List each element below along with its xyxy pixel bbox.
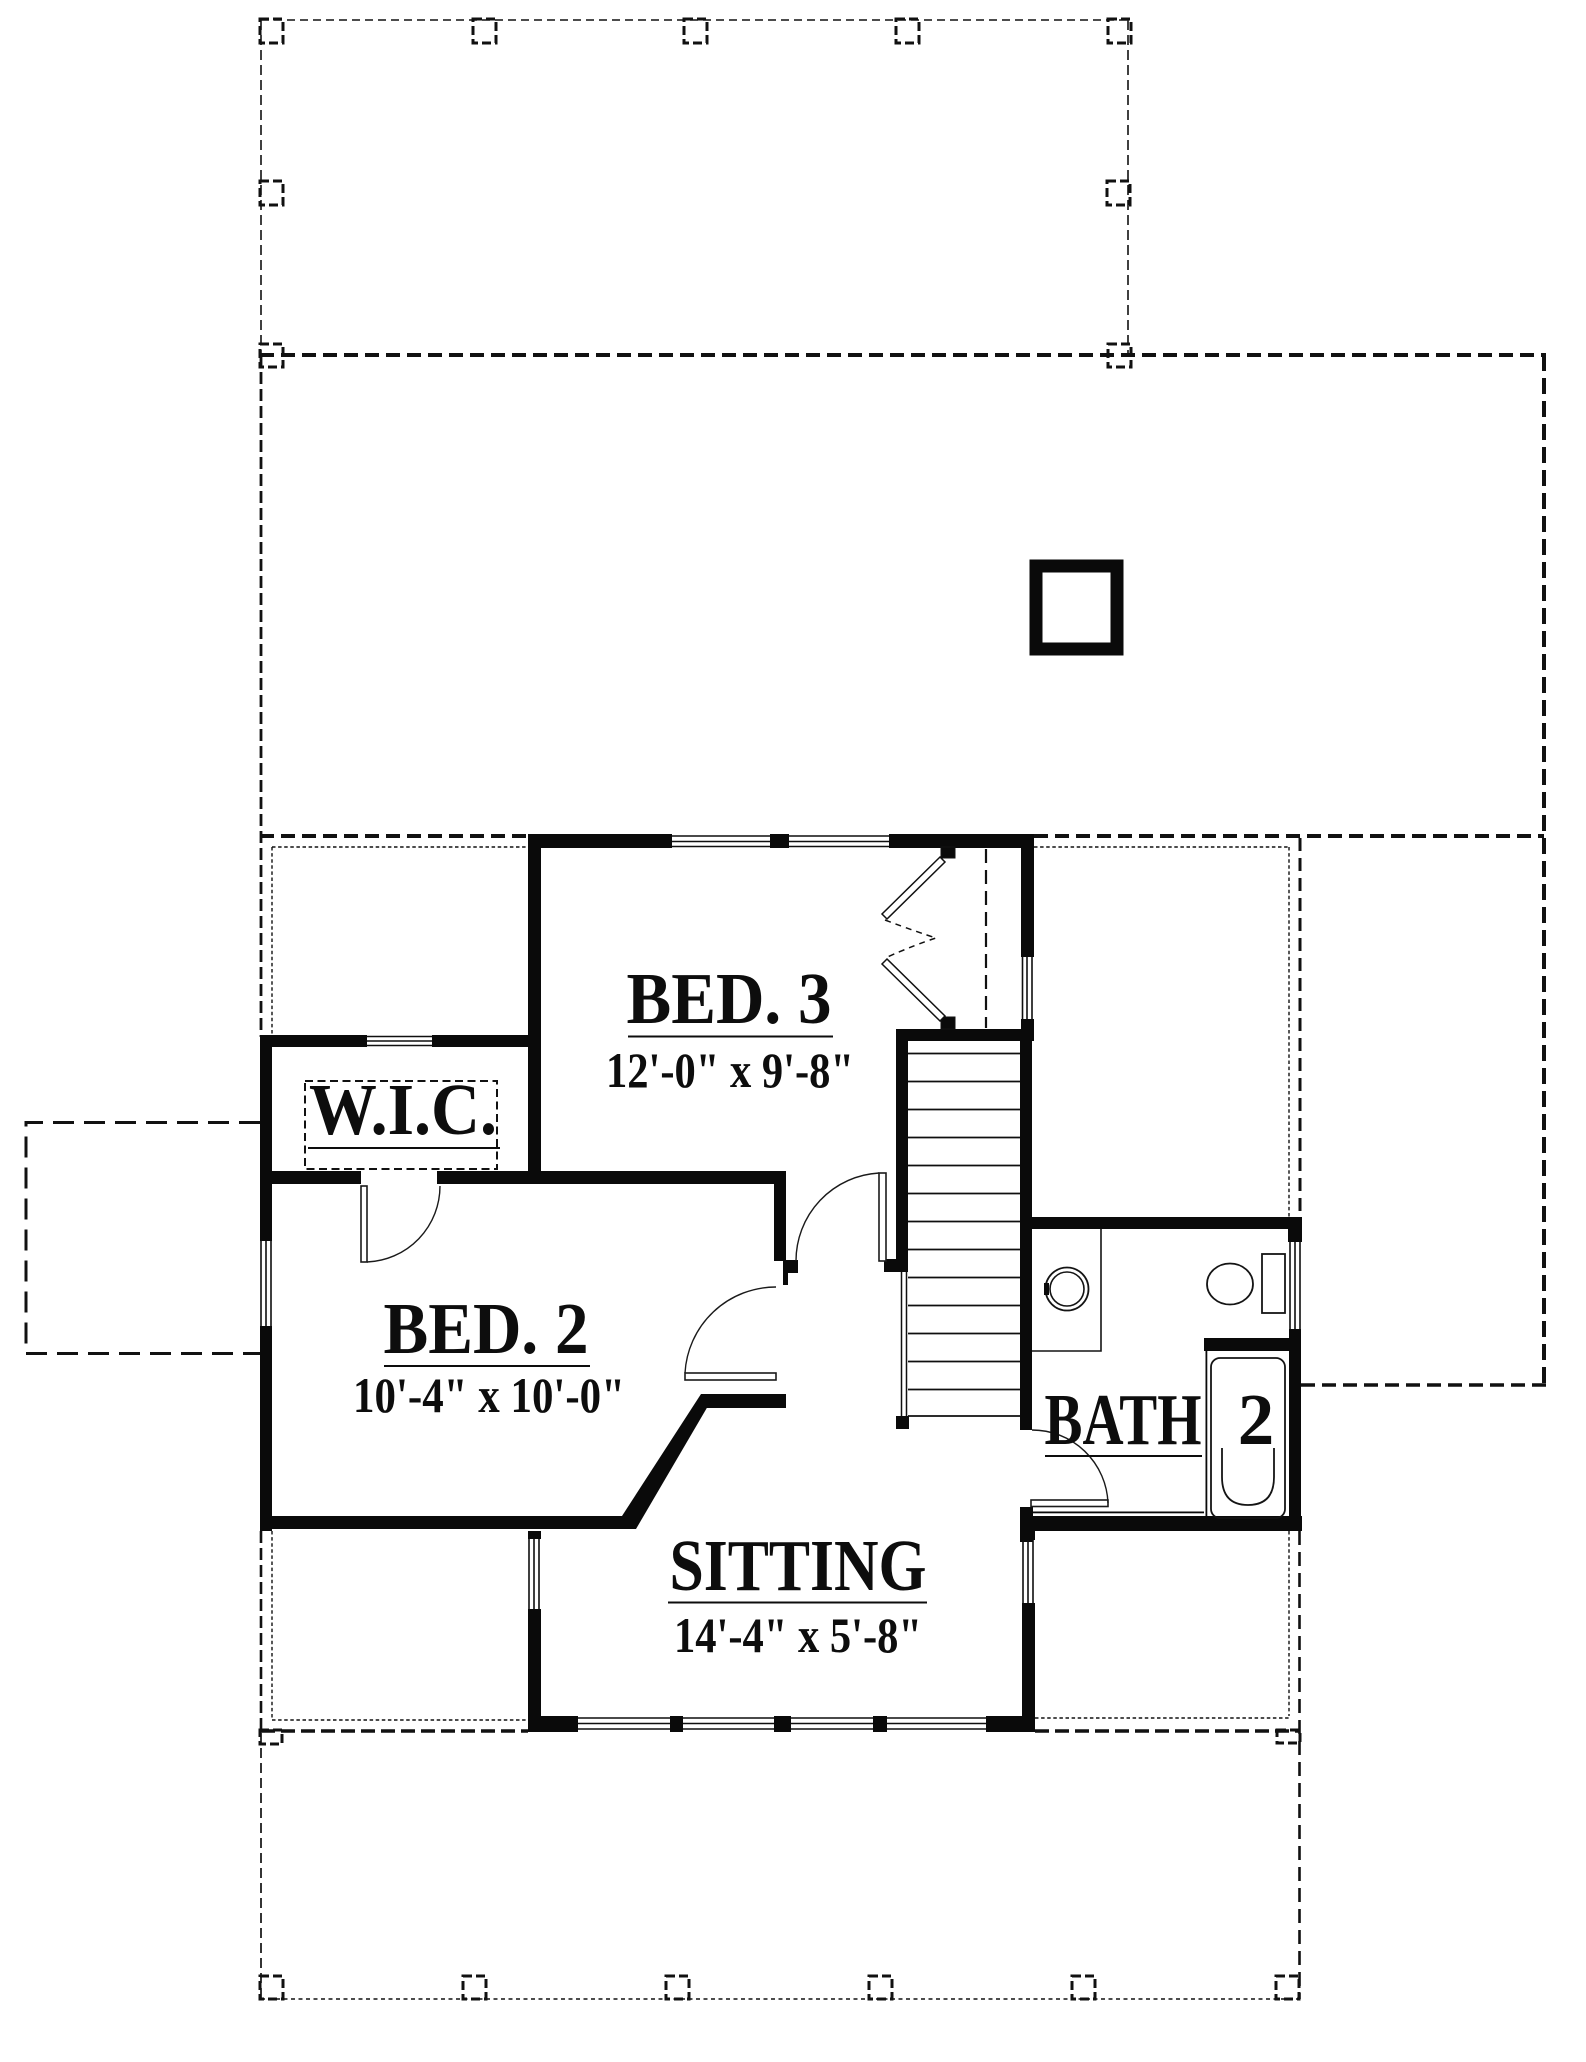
svg-text:14'-4" x 5'-8": 14'-4" x 5'-8" [674, 1607, 922, 1663]
svg-text:12'-0" x 9'-8": 12'-0" x 9'-8" [606, 1042, 854, 1098]
svg-text:W.I.C.: W.I.C. [309, 1069, 497, 1150]
svg-text:BED. 3: BED. 3 [627, 958, 832, 1039]
svg-text:10'-4" x 10'-0": 10'-4" x 10'-0" [353, 1367, 625, 1423]
svg-text:SITTING: SITTING [670, 1525, 927, 1606]
svg-text:2: 2 [1238, 1379, 1275, 1460]
svg-text:BATH: BATH [1045, 1379, 1202, 1460]
svg-text:BED. 2: BED. 2 [384, 1288, 589, 1369]
